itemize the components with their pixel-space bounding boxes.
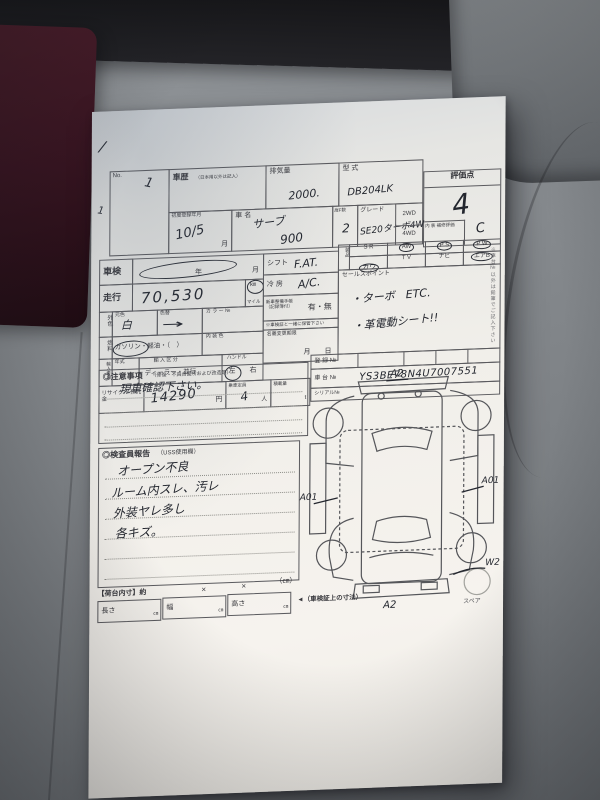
photo-scene: / No. 1 1 車歴 （日本用以外は記入） 排気量 2000. 型 式 DB… [0, 0, 600, 800]
photo-vignette [0, 0, 600, 800]
